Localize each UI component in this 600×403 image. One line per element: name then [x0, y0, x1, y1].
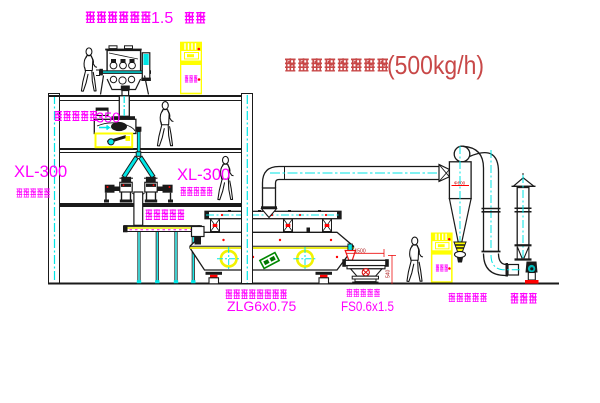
svg-text:350: 350	[96, 111, 120, 127]
svg-text:XL-300: XL-300	[177, 166, 230, 184]
svg-text:XL-300: XL-300	[14, 163, 67, 181]
svg-text:ZLG6x0.75: ZLG6x0.75	[227, 298, 296, 314]
svg-text:1500: 1500	[355, 249, 366, 255]
svg-text:1.5: 1.5	[151, 10, 173, 27]
svg-text:(500kg/h): (500kg/h)	[387, 50, 484, 80]
svg-text:540: 540	[386, 269, 392, 278]
svg-text:FS0.6x1.5: FS0.6x1.5	[341, 298, 394, 314]
